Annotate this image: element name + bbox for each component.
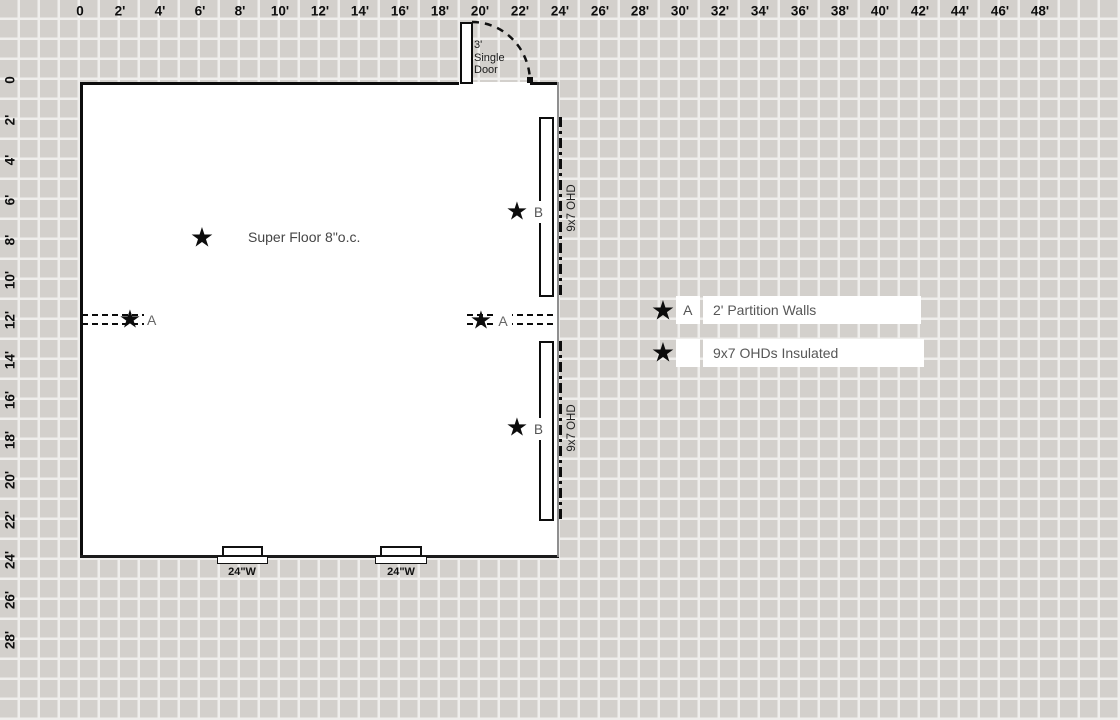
ruler-left-label: 4'	[3, 155, 18, 166]
ohd-key-lower[interactable]: B	[529, 418, 548, 440]
ruler-top-label: 8'	[235, 4, 246, 19]
ruler-top-label: 36'	[791, 4, 809, 19]
ruler-left-label: 22'	[3, 511, 18, 529]
ruler-top-label: 14'	[351, 4, 369, 19]
legend-row2-key[interactable]	[676, 339, 701, 367]
star-icon[interactable]: ★	[506, 200, 528, 225]
ohd-opening-line-lower	[559, 341, 562, 521]
ruler-top-label: 46'	[991, 4, 1009, 19]
ruler-top-label: 22'	[511, 4, 529, 19]
wall-top-left-segment[interactable]	[80, 82, 459, 85]
door-label-line2: Single	[474, 52, 505, 65]
star-icon[interactable]: ★	[651, 340, 675, 367]
legend-row1-label: 2' Partition Walls	[703, 302, 816, 318]
legend-row1-key[interactable]: A	[676, 296, 701, 324]
ohd-side-label-upper: 9x7 OHD	[566, 184, 578, 231]
ruler-left-label: 0	[3, 76, 18, 84]
ruler-top-label: 4'	[155, 4, 166, 19]
ruler-top-label: 0	[76, 4, 84, 19]
ruler-left-label: 20'	[3, 471, 18, 489]
ruler-top-label: 2'	[115, 4, 126, 19]
door-label-line3: Door	[474, 64, 505, 77]
wall-bottom[interactable]	[80, 555, 559, 558]
ruler-top-label: 10'	[271, 4, 289, 19]
ohd-key-upper[interactable]: B	[529, 201, 548, 223]
star-icon[interactable]: ★	[119, 308, 141, 333]
ruler-top-label: 18'	[431, 4, 449, 19]
window-1-sill[interactable]	[217, 556, 268, 564]
ruler-left-label: 16'	[3, 391, 18, 409]
ruler-left-label: 18'	[3, 431, 18, 449]
legend-row2[interactable]: 9x7 OHDs Insulated	[703, 339, 924, 367]
ohd-opening-line-upper	[559, 117, 562, 297]
ruler-top-label: 48'	[1031, 4, 1049, 19]
star-icon[interactable]: ★	[190, 225, 214, 252]
star-icon[interactable]: ★	[651, 298, 675, 325]
ruler-top-label: 44'	[951, 4, 969, 19]
ruler-left-label: 12'	[3, 311, 18, 329]
ohd-side-label-lower: 9x7 OHD	[566, 404, 578, 451]
ruler-left-label: 8'	[3, 235, 18, 246]
ruler-left-label: 6'	[3, 195, 18, 206]
window-2-sill[interactable]	[375, 556, 427, 564]
ruler-top-label: 20'	[471, 4, 489, 19]
ruler-top-label: 12'	[311, 4, 329, 19]
ruler-top-label: 26'	[591, 4, 609, 19]
ruler-top-label: 42'	[911, 4, 929, 19]
ruler-left-label: 14'	[3, 351, 18, 369]
ruler-left-label: 26'	[3, 591, 18, 609]
star-icon[interactable]: ★	[506, 416, 528, 441]
ruler-top-label: 16'	[391, 4, 409, 19]
floorplan-canvas: 02'4'6'8'10'12'14'16'18'20'22'24'26'28'3…	[0, 0, 1120, 720]
ruler-left-label: 24'	[3, 551, 18, 569]
ruler-top-label: 38'	[831, 4, 849, 19]
wall-left[interactable]	[80, 82, 83, 558]
ruler-top-label: 34'	[751, 4, 769, 19]
ruler-top-label: 40'	[871, 4, 889, 19]
ruler-top-label: 30'	[671, 4, 689, 19]
ruler-top-label: 6'	[195, 4, 206, 19]
door-label-line1: 3'	[474, 39, 505, 52]
partition-left-key: A	[147, 312, 156, 328]
ruler-left-label: 2'	[3, 115, 18, 126]
legend-row1[interactable]: 2' Partition Walls	[703, 296, 921, 324]
ruler-left-label: 28'	[3, 631, 18, 649]
partition-mid-key: A	[495, 312, 512, 330]
star-icon[interactable]: ★	[470, 309, 492, 334]
single-door-label: 3' Single Door	[474, 39, 505, 77]
ruler-top-label: 28'	[631, 4, 649, 19]
legend-row2-label: 9x7 OHDs Insulated	[703, 345, 838, 361]
ruler-top-label: 24'	[551, 4, 569, 19]
window-2-label: 24"W	[387, 566, 415, 578]
ruler-top-label: 32'	[711, 4, 729, 19]
window-1-label: 24"W	[228, 566, 256, 578]
ruler-left-label: 10'	[3, 271, 18, 289]
floor-note[interactable]: Super Floor 8"o.c.	[248, 229, 360, 245]
